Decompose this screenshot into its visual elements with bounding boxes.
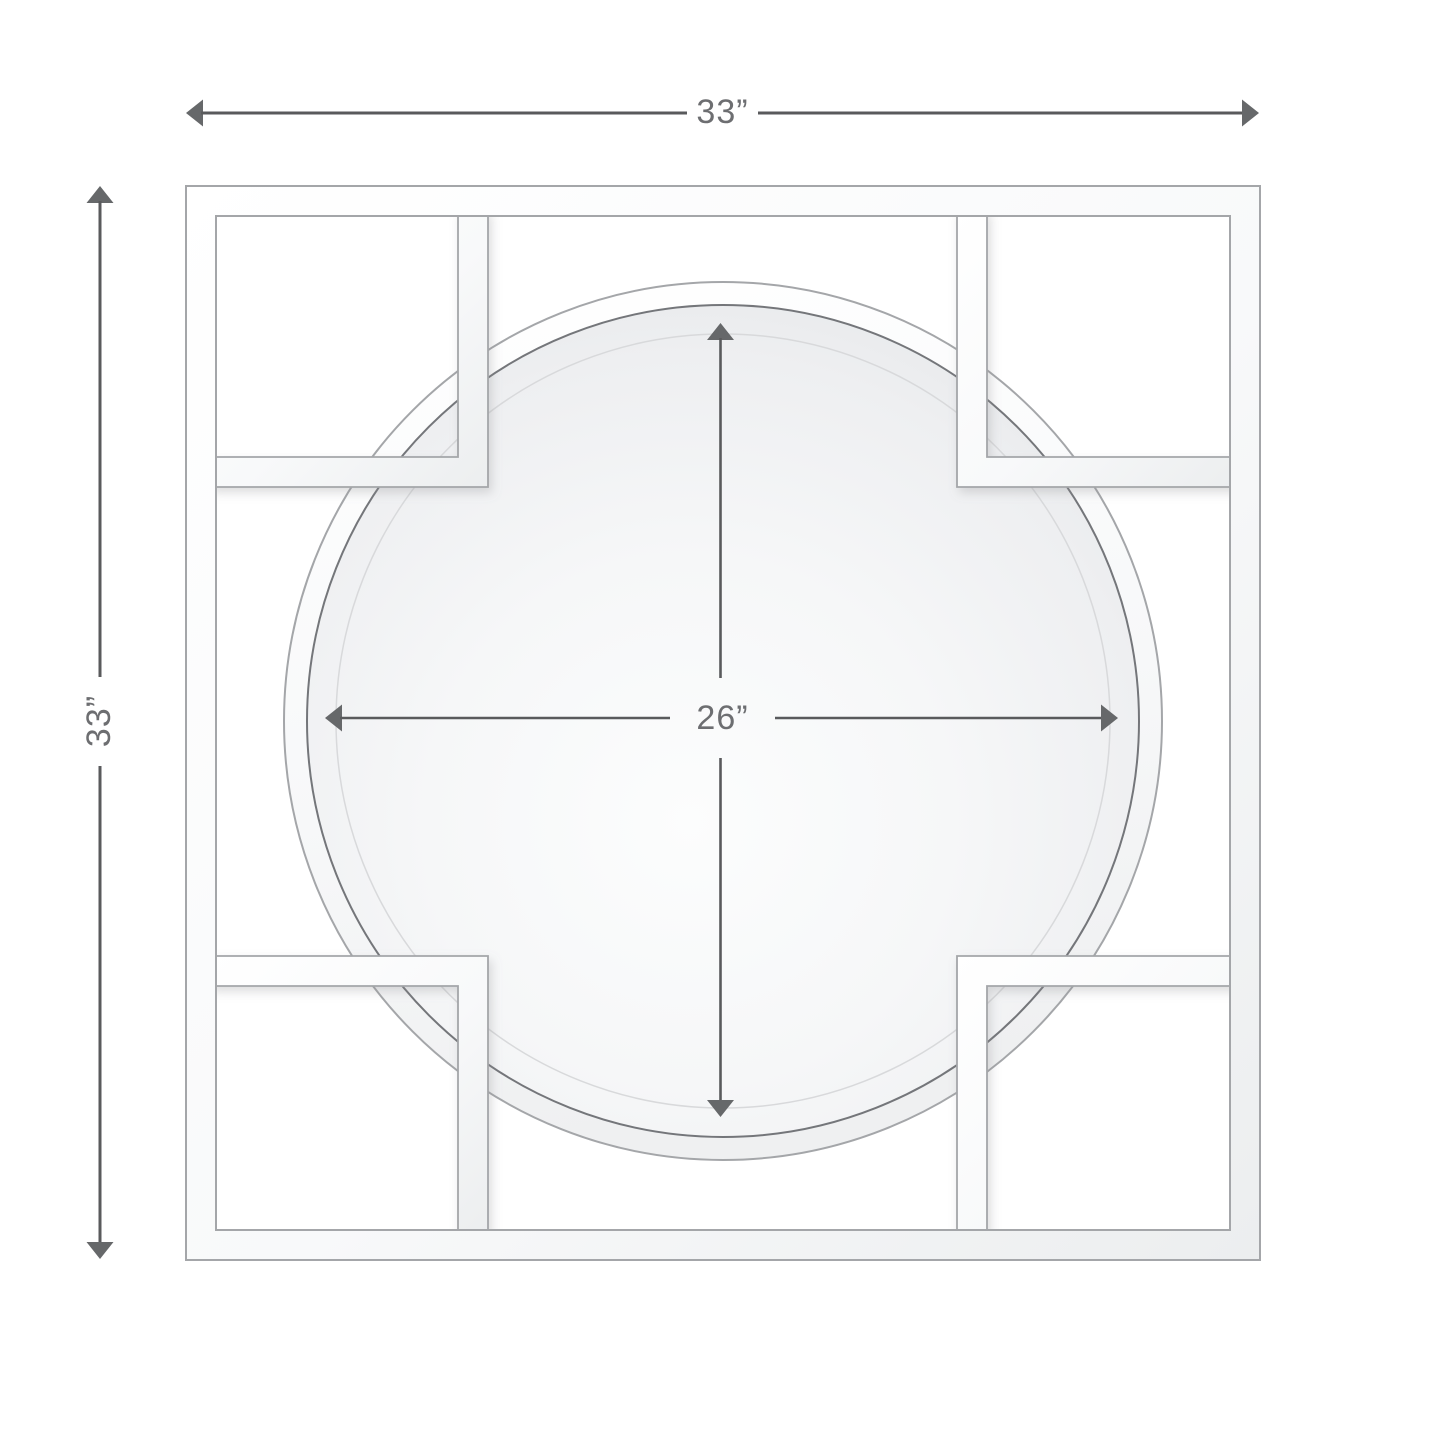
mirror-dimension-diagram: 26” 33” 33”: [0, 0, 1445, 1445]
width-dimension-label: 33”: [696, 93, 748, 131]
width-dimension: 33”: [186, 93, 1259, 131]
mirror-diameter-label: 26”: [696, 699, 748, 737]
arrowhead-right-icon: [1242, 100, 1259, 127]
height-dimension: 33”: [80, 186, 118, 1259]
arrowhead-left-icon: [186, 100, 203, 127]
arrowhead-down-icon: [87, 1242, 114, 1259]
height-dimension-label: 33”: [80, 695, 118, 747]
arrowhead-up-icon: [87, 186, 114, 203]
dimension-diagram-canvas: 26” 33” 33”: [0, 0, 1445, 1445]
